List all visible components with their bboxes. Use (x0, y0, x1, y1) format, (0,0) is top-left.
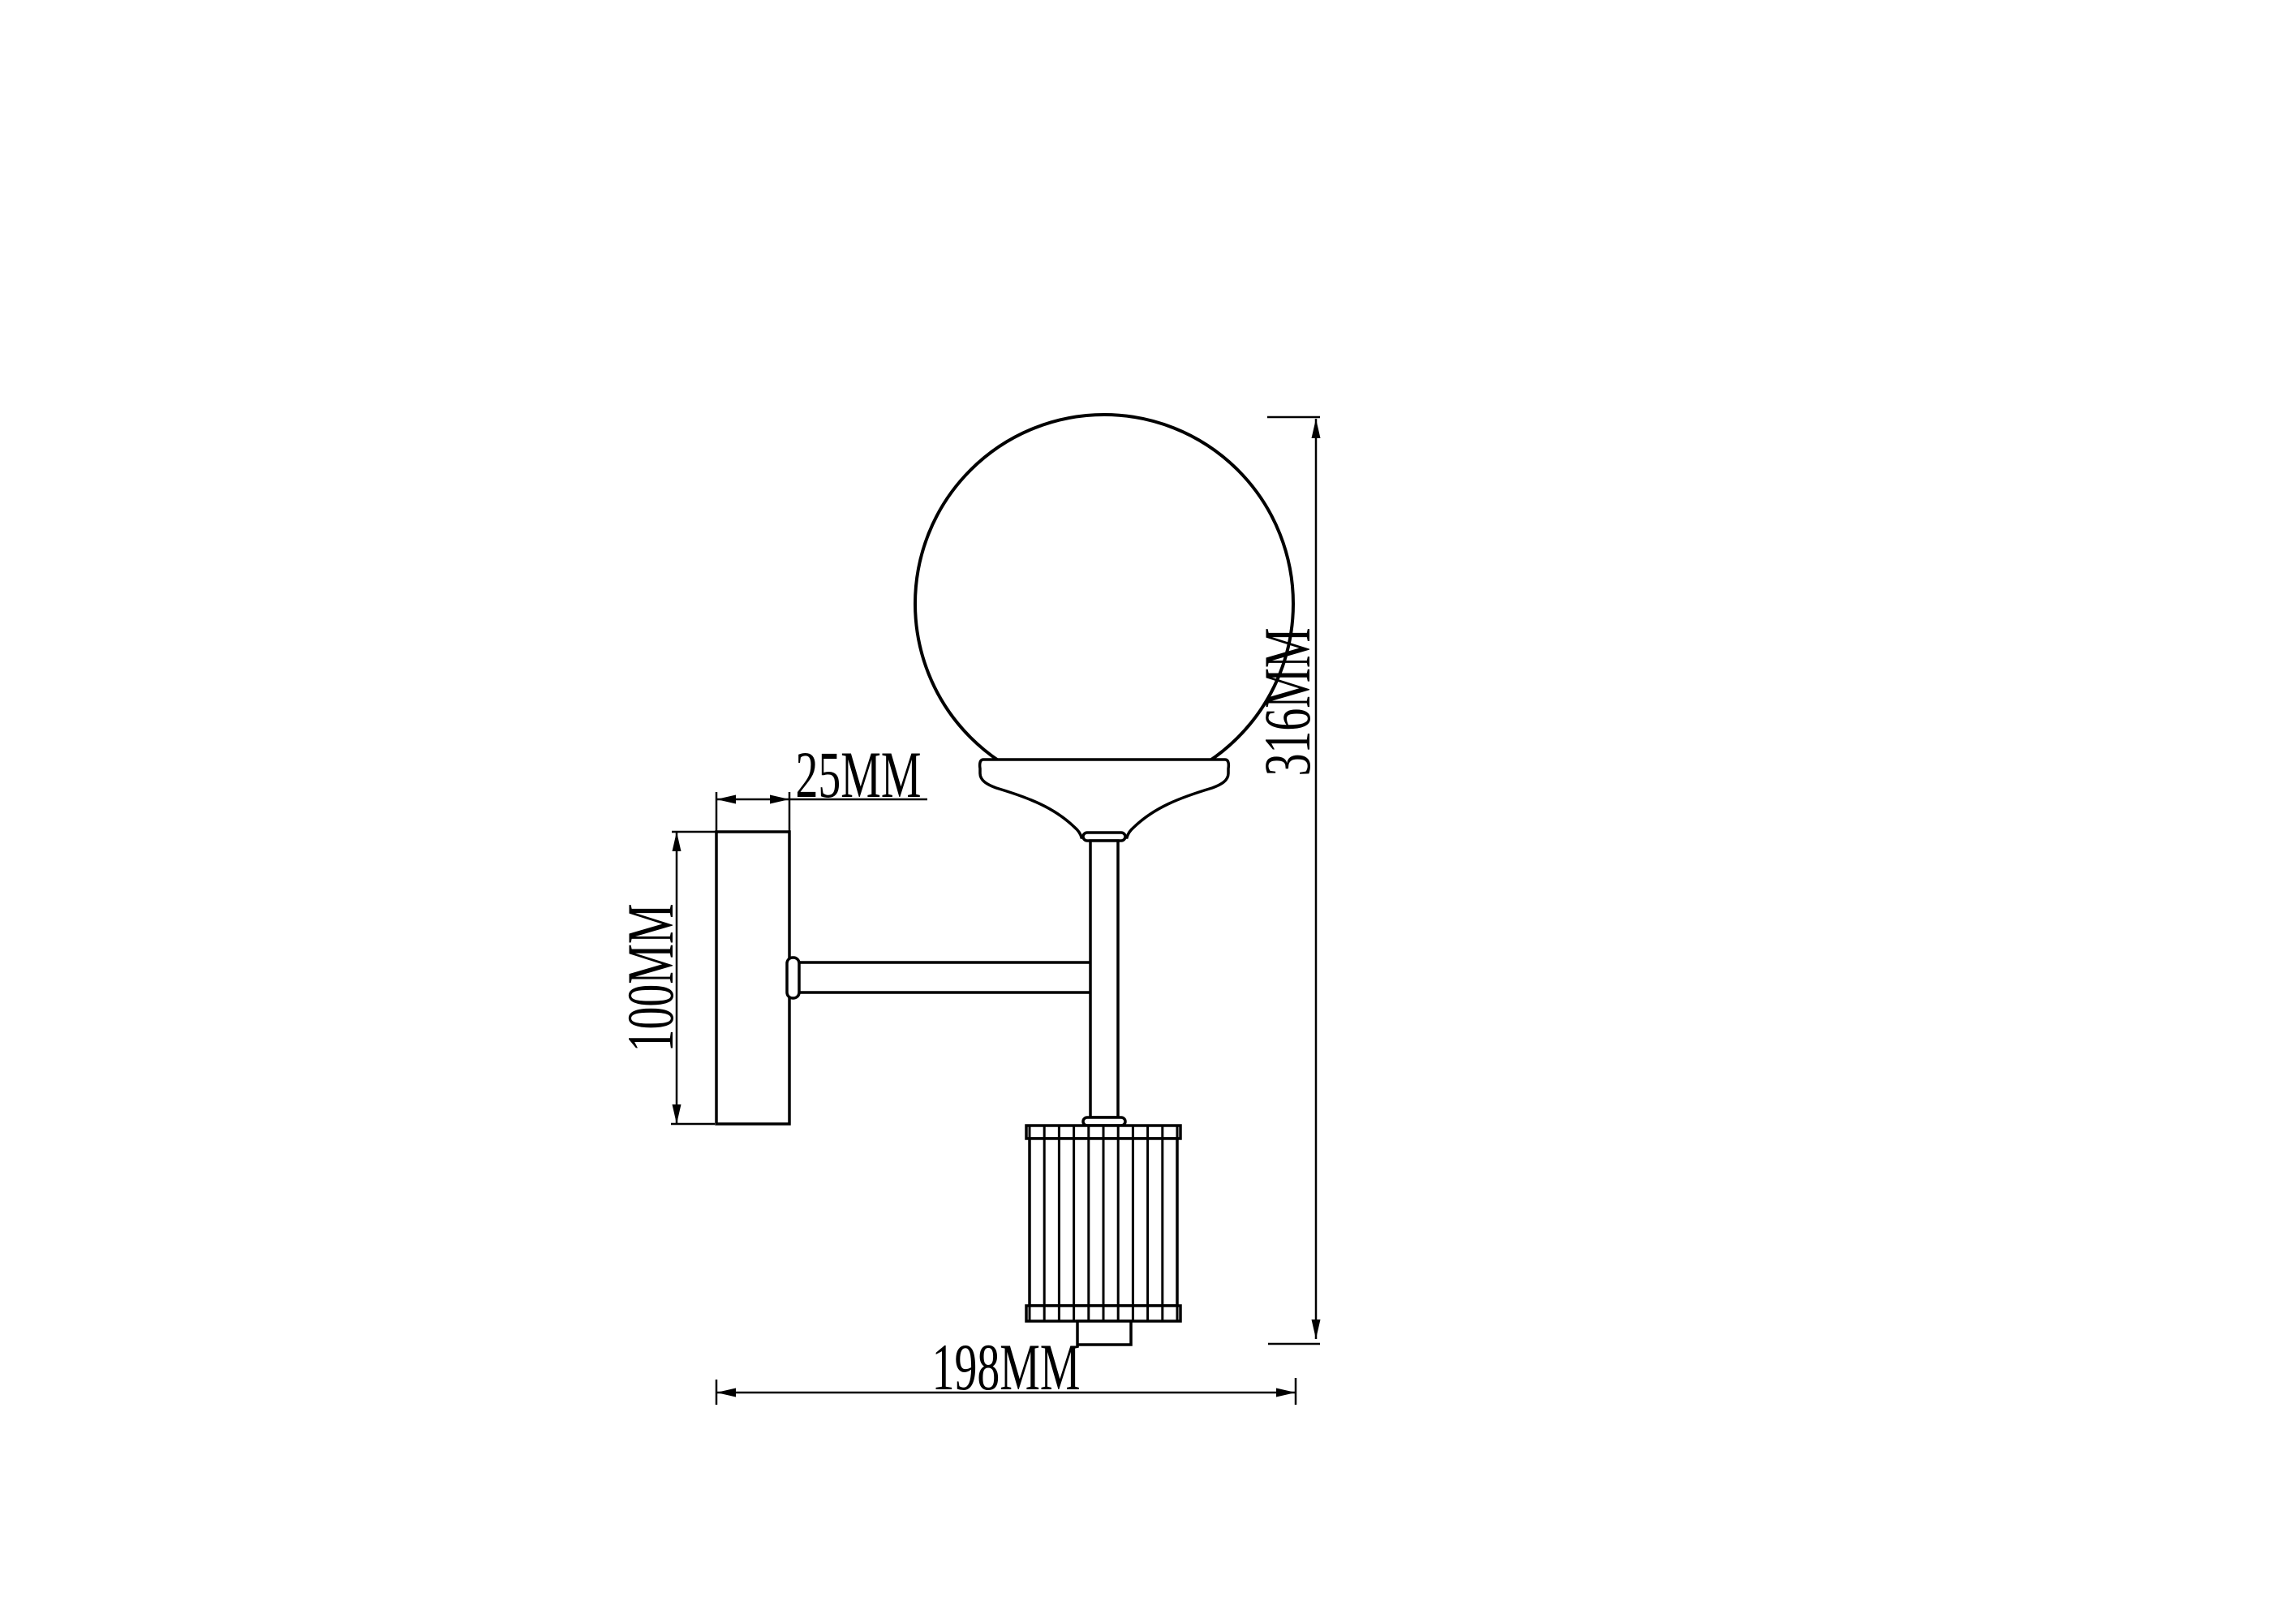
shade-finial-stub (1077, 1321, 1131, 1345)
dim-overall-depth: 198MM (716, 1332, 1296, 1405)
dim-arrow-down (1312, 1319, 1321, 1339)
dim-plate-depth: 25MM (716, 739, 927, 832)
dim-arrow-right (1276, 1388, 1296, 1397)
sconce-figure (716, 415, 1293, 1345)
wall-plate (716, 832, 789, 1124)
dim-arrow-up (673, 832, 681, 851)
dim-arrow-down (673, 1104, 681, 1124)
dim-plate-height: 100MM (615, 832, 716, 1124)
dim-arrow-left (716, 1388, 736, 1397)
dim-arrow-right (770, 795, 789, 804)
dim-label-overall-height: 316MM (1252, 628, 1325, 777)
dim-label-plate-height: 100MM (615, 904, 688, 1053)
dim-arrow-up (1312, 419, 1321, 438)
globe-shade-outline (915, 415, 1293, 793)
dim-label-overall-depth: 198MM (932, 1332, 1081, 1405)
globe-fitter (980, 760, 1229, 837)
arm-flange (787, 958, 799, 998)
dim-arrow-left (716, 795, 736, 804)
technical-drawing: 25MM 100MM 316MM 198MM (0, 0, 2296, 1623)
stem (1090, 841, 1118, 1117)
dim-label-plate-depth: 25MM (796, 739, 922, 812)
